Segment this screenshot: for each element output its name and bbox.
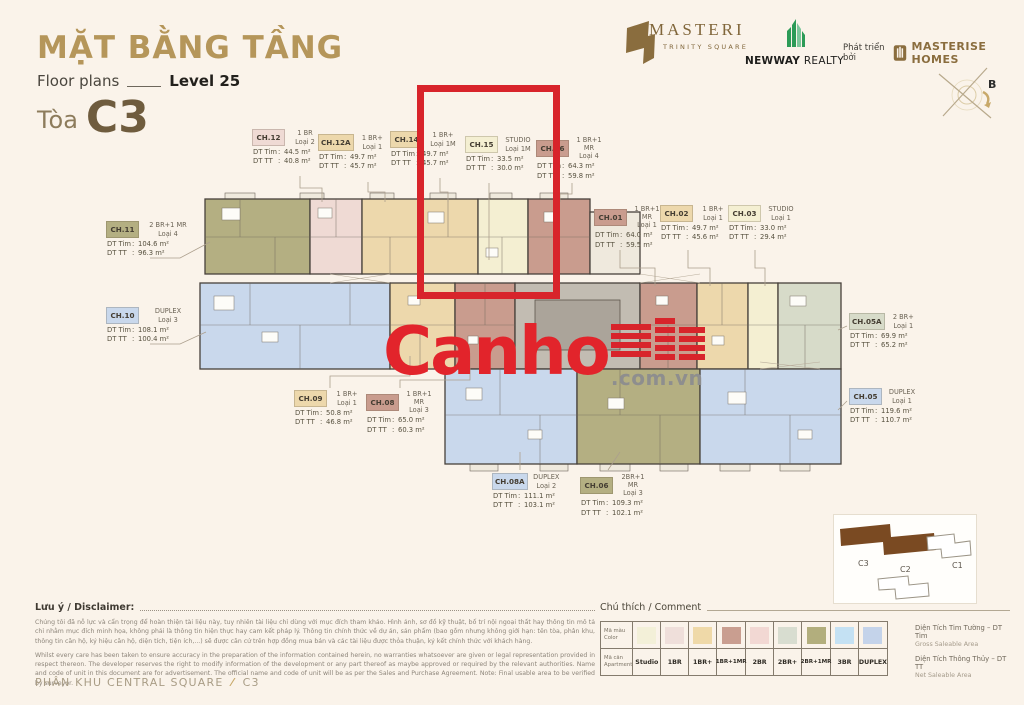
unit-area-net: DT TT:110.7 m² <box>849 416 919 424</box>
site-map-label-c2: C2 <box>900 565 911 574</box>
unit-area-gross: DT Tim:33.0 m² <box>728 224 798 232</box>
unit-badge: CH.03 <box>728 205 761 222</box>
watermark-suffix: .com.vn <box>611 366 703 390</box>
unit-type: 2 BR+1 MRLoại 4 <box>142 221 194 237</box>
site-map-building-c1 <box>927 534 971 558</box>
site-map-label-c3: C3 <box>858 559 869 568</box>
unit-label-ch09: CH.091 BR+Loại 1DT Tim:50.8 m²DT TT:46.8… <box>294 390 364 427</box>
unit-label-ch11: CH.112 BR+1 MRLoại 4DT Tim:104.6 m²DT TT… <box>106 221 194 258</box>
unit-area-gross: DT Tim:50.8 m² <box>294 409 364 417</box>
unit-badge: CH.01 <box>594 209 627 226</box>
unit-label-ch06: CH.062BR+1 MRLoại 3DT Tim:109.3 m²DT TT:… <box>580 473 650 518</box>
unit-type: DUPLEXLoại 2 <box>531 473 562 489</box>
plan-unit-ch11 <box>205 199 310 274</box>
unit-label-ch12a: CH.12A1 BR+Loại 1DT Tim:49.7 m²DT TT:45.… <box>318 134 388 171</box>
unit-label-ch08a: CH.08ADUPLEXLoại 2DT Tim:111.1 m²DT TT:1… <box>492 473 562 510</box>
site-map-building-c2 <box>878 576 929 599</box>
unit-area-gross: DT Tim:104.6 m² <box>106 240 194 248</box>
plan-unit-ch05a <box>778 283 841 369</box>
unit-badge: CH.08A <box>492 473 528 490</box>
unit-type: 1 BR+Loại 1 <box>330 390 364 406</box>
highlight-rectangle <box>417 85 560 299</box>
plan-unit-ch03 <box>748 283 778 369</box>
unit-type: DUPLEXLoại 3 <box>142 307 194 323</box>
unit-badge: CH.05 <box>849 388 882 405</box>
unit-area-gross: DT Tim:108.1 m² <box>106 326 194 334</box>
floor-plan-page: MẶT BẰNG TẦNG Floor plans Level 25 Tòa C… <box>0 0 1024 705</box>
unit-type: STUDIOLoại 1 <box>764 205 798 221</box>
site-map-drawing <box>834 515 976 603</box>
watermark-brand: Canho <box>383 318 609 396</box>
unit-label-ch02: CH.021 BR+Loại 1DT Tim:49.7 m²DT TT:45.6… <box>660 205 730 242</box>
site-map: C3 C1 C2 <box>833 514 977 604</box>
unit-area-net: DT TT:40.8 m² <box>252 157 322 165</box>
unit-area-net: DT TT:65.2 m² <box>849 341 919 349</box>
unit-badge: CH.02 <box>660 205 693 222</box>
unit-area-net: DT TT:96.3 m² <box>106 249 194 257</box>
watermark: Canho .com.vn <box>383 318 711 396</box>
unit-badge: CH.10 <box>106 307 139 324</box>
unit-area-gross: DT Tim:119.6 m² <box>849 407 919 415</box>
unit-area-gross: DT Tim:64.0 m² <box>594 231 664 239</box>
unit-area-gross: DT Tim:49.7 m² <box>318 153 388 161</box>
unit-type: 1 BR+1 MRLoại 1 <box>630 205 664 230</box>
unit-label-ch05a: CH.05A2 BR+Loại 1DT Tim:69.9 m²DT TT:65.… <box>849 313 919 350</box>
unit-label-ch10: CH.10DUPLEXLoại 3DT Tim:108.1 m²DT TT:10… <box>106 307 194 344</box>
unit-badge: CH.12 <box>252 129 285 146</box>
unit-area-net: DT TT:102.1 m² <box>580 509 650 517</box>
unit-area-net: DT TT:45.6 m² <box>660 233 730 241</box>
unit-badge: CH.06 <box>580 477 613 494</box>
unit-type: 1 BR+1 MRLoại 4 <box>572 136 606 161</box>
unit-area-net: DT TT:103.1 m² <box>492 501 562 509</box>
unit-type: 1 BRLoại 2 <box>288 129 322 145</box>
unit-label-ch01: CH.011 BR+1 MRLoại 1DT Tim:64.0 m²DT TT:… <box>594 205 664 250</box>
unit-area-gross: DT Tim:44.5 m² <box>252 148 322 156</box>
unit-area-gross: DT Tim:69.9 m² <box>849 332 919 340</box>
unit-area-gross: DT Tim:111.1 m² <box>492 492 562 500</box>
site-map-label-c1: C1 <box>952 561 963 570</box>
unit-badge: CH.09 <box>294 390 327 407</box>
unit-area-net: DT TT:45.7 m² <box>318 162 388 170</box>
unit-type: DUPLEXLoại 1 <box>885 388 919 404</box>
unit-area-gross: DT Tim:49.7 m² <box>660 224 730 232</box>
unit-label-ch08: CH.081 BR+1 MRLoại 3DT Tim:65.0 m²DT TT:… <box>366 390 436 435</box>
site-map-building-c3 <box>840 524 936 555</box>
unit-badge: CH.08 <box>366 394 399 411</box>
plan-unit-ch05 <box>700 369 841 464</box>
unit-area-net: DT TT:46.8 m² <box>294 418 364 426</box>
unit-label-ch05: CH.05DUPLEXLoại 1DT Tim:119.6 m²DT TT:11… <box>849 388 919 425</box>
unit-area-net: DT TT:60.3 m² <box>366 426 436 434</box>
unit-type: 2BR+1 MRLoại 3 <box>616 473 650 498</box>
unit-area-net: DT TT:100.4 m² <box>106 335 194 343</box>
unit-type: 1 BR+Loại 1 <box>357 134 388 150</box>
unit-area-net: DT TT:59.5 m² <box>594 241 664 249</box>
unit-badge: CH.05A <box>849 313 885 330</box>
unit-badge: CH.11 <box>106 221 139 238</box>
unit-badge: CH.12A <box>318 134 354 151</box>
unit-area-net: DT TT:29.4 m² <box>728 233 798 241</box>
unit-area-gross: DT Tim:109.3 m² <box>580 499 650 507</box>
unit-label-ch12: CH.121 BRLoại 2DT Tim:44.5 m²DT TT:40.8 … <box>252 129 322 166</box>
watermark-buildings-icon <box>611 318 706 368</box>
unit-type: 1 BR+Loại 1 <box>696 205 730 221</box>
unit-label-ch03: CH.03STUDIOLoại 1DT Tim:33.0 m²DT TT:29.… <box>728 205 798 242</box>
unit-type: 2 BR+Loại 1 <box>888 313 919 329</box>
unit-area-gross: DT Tim:65.0 m² <box>366 416 436 424</box>
